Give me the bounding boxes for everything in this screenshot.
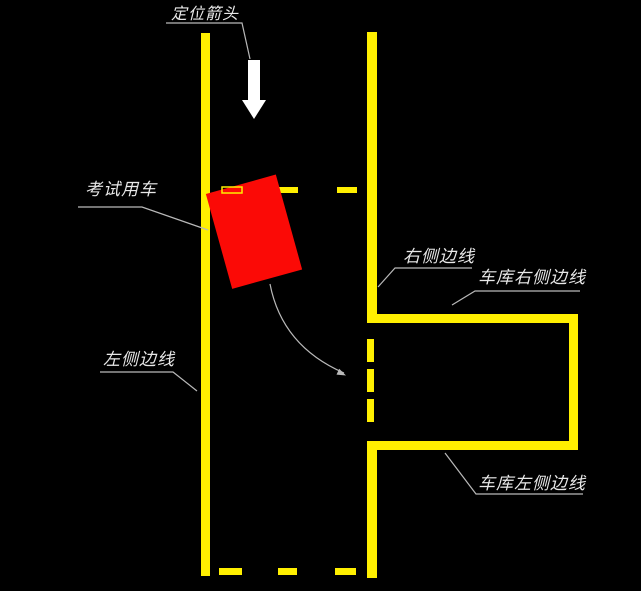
positioning-arrow-shaft: [248, 60, 260, 101]
label-exam-vehicle: 考试用车: [85, 180, 158, 199]
top-control-dashed-line: [278, 187, 357, 193]
leader-garage-right-side-line: [452, 291, 580, 305]
label-garage-left-side-line: 车库左侧边线: [478, 474, 587, 493]
control-dash: [335, 568, 356, 575]
label-left-side-line: 左侧边线: [103, 350, 176, 369]
positioning-arrow-head: [242, 100, 266, 119]
label-positioning-arrow: 定位箭头: [171, 5, 239, 23]
bottom-control-dashed-line: [219, 568, 356, 575]
control-dash: [278, 568, 297, 575]
leader-exam-vehicle: [78, 207, 208, 230]
diagram-canvas: 定位箭头 考试用车 左侧边线 右侧边线 车库右侧边线 车库左侧边线: [0, 0, 641, 591]
leader-right-side-line: [378, 268, 472, 287]
right-side-line: [367, 32, 377, 323]
entry-dash: [367, 369, 374, 392]
control-dash: [337, 187, 357, 193]
garage-entry-dashed-line: [367, 339, 374, 422]
garage-left-side-line: [367, 441, 578, 450]
control-dash: [219, 568, 242, 575]
positioning-arrow: [242, 60, 266, 119]
label-garage-right-side-line: 车库右侧边线: [478, 268, 587, 287]
right-side-line-lower: [367, 441, 377, 578]
label-right-side-line: 右侧边线: [403, 247, 476, 266]
reverse-path-arrow: [270, 284, 346, 376]
reverse-parking-diagram: 定位箭头 考试用车 左侧边线 右侧边线 车库右侧边线 车库左侧边线: [0, 0, 641, 591]
control-dash: [278, 187, 298, 193]
reverse-path-curve: [270, 284, 344, 373]
entry-dash: [367, 399, 374, 422]
left-side-line: [201, 33, 210, 576]
leader-left-side-line: [100, 372, 197, 391]
garage-back-line: [569, 314, 578, 450]
entry-dash: [367, 339, 374, 362]
garage-right-side-line: [367, 314, 578, 323]
